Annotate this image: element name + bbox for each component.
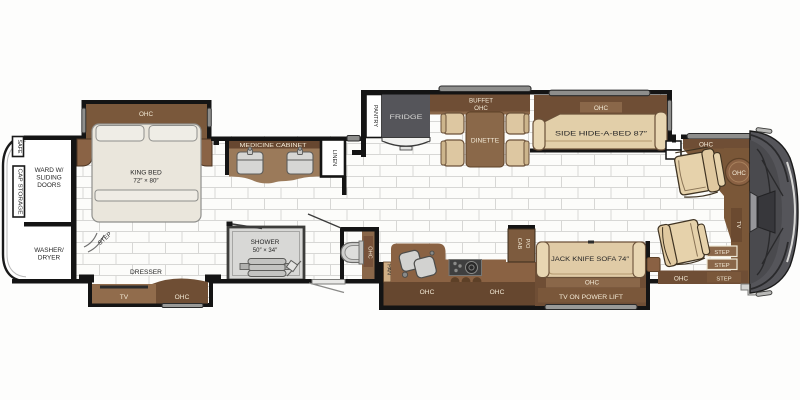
svg-text:OHC: OHC — [139, 111, 153, 118]
svg-text:STEP: STEP — [714, 250, 729, 256]
svg-text:OHC: OHC — [175, 294, 190, 301]
svg-text:OHC: OHC — [420, 289, 435, 296]
svg-text:OHC: OHC — [367, 246, 373, 258]
svg-text:TV: TV — [120, 294, 129, 301]
svg-text:SIDE HIDE-A-BED 87″: SIDE HIDE-A-BED 87″ — [555, 131, 648, 138]
svg-text:FRIDGE: FRIDGE — [390, 114, 424, 121]
svg-text:JACK KNIFE SOFA 74″: JACK KNIFE SOFA 74″ — [551, 256, 630, 263]
svg-text:PAN: PAN — [386, 264, 392, 275]
svg-text:TV ON POWER LIFT: TV ON POWER LIFT — [559, 295, 623, 301]
svg-text:DRYER: DRYER — [38, 255, 61, 262]
svg-text:OHC: OHC — [585, 280, 600, 287]
svg-text:SHOWER: SHOWER — [251, 239, 280, 246]
svg-text:OHC: OHC — [674, 276, 689, 283]
svg-text:DOORS: DOORS — [37, 182, 60, 189]
svg-text:OHC: OHC — [594, 105, 609, 112]
svg-text:LINEN: LINEN — [331, 150, 337, 166]
svg-text:WARD W/: WARD W/ — [35, 167, 64, 174]
svg-text:SLIDING: SLIDING — [36, 175, 62, 182]
svg-text:OHC: OHC — [490, 289, 505, 296]
svg-text:SAFE: SAFE — [16, 139, 22, 153]
svg-text:DRESSER: DRESSER — [130, 269, 162, 276]
svg-text:PANTRY: PANTRY — [372, 105, 378, 127]
svg-text:CAP STORAGE: CAP STORAGE — [17, 169, 23, 216]
svg-text:BUFFET: BUFFET — [469, 98, 493, 105]
svg-text:TV: TV — [735, 221, 741, 229]
svg-text:WASHER/: WASHER/ — [34, 247, 64, 254]
svg-text:DINETTE: DINETTE — [471, 138, 500, 145]
svg-text:50″ × 34″: 50″ × 34″ — [253, 248, 278, 254]
svg-text:OHC: OHC — [474, 105, 488, 112]
svg-text:CAB: CAB — [516, 238, 522, 250]
svg-text:OHC: OHC — [732, 170, 746, 177]
svg-text:P/O: P/O — [524, 239, 530, 249]
svg-text:KING BED: KING BED — [130, 170, 162, 177]
svg-text:STEP: STEP — [716, 277, 731, 283]
svg-text:72″ × 80″: 72″ × 80″ — [133, 178, 159, 185]
svg-text:STEP: STEP — [714, 263, 729, 269]
